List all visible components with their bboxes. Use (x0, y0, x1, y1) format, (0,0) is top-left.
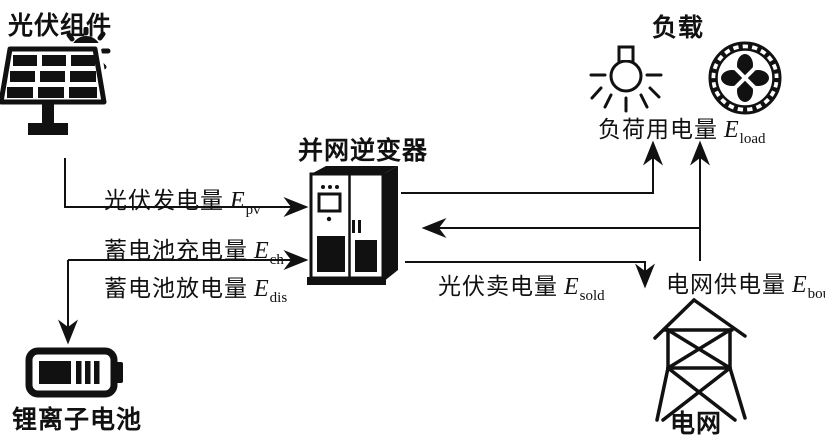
solar-panel-icon (0, 27, 115, 139)
energy-flow-diagram: 光伏组件 光伏发电量Epv 蓄电池充电量Ech 蓄电池放电量Ed (0, 0, 825, 436)
flow-label-pv-sold: 光伏卖电量Esold (438, 267, 605, 305)
battery-icon (24, 344, 128, 400)
flow-label-pv-generation: 光伏发电量Epv (104, 181, 261, 219)
fan-icon (707, 40, 783, 116)
flow-line-inverter-to-load (401, 143, 653, 193)
light-bulb-icon (586, 44, 670, 114)
flow-label-load-consumption: 负荷用电量Eload (598, 110, 766, 148)
flow-label-battery-charge: 蓄电池充电量Ech (104, 231, 284, 269)
load-title: 负载 (652, 8, 704, 44)
battery-title: 锂离子电池 (12, 400, 142, 436)
grid-title: 电网 (670, 404, 722, 436)
inverter-cabinet-icon (303, 158, 407, 292)
flow-label-battery-discharge: 蓄电池放电量Edis (104, 269, 287, 307)
